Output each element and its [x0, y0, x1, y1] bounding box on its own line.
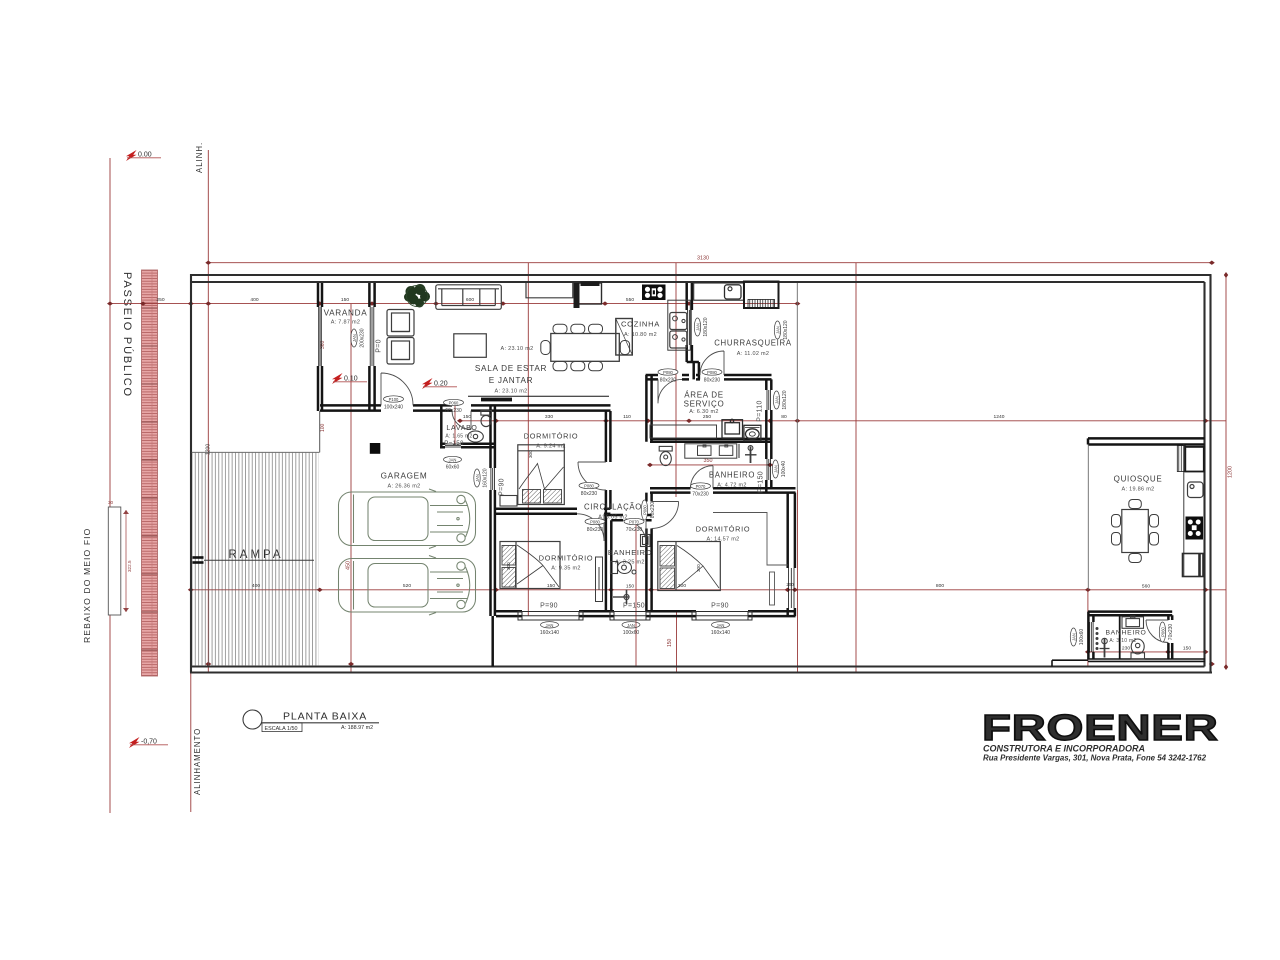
svg-text:80x230: 80x230 — [581, 491, 598, 497]
svg-text:Rua Presidente Vargas, 301, No: Rua Presidente Vargas, 301, Nova Prata, … — [983, 754, 1207, 763]
svg-text:JAN: JAN — [546, 623, 554, 628]
svg-text:A: 23.10 m2: A: 23.10 m2 — [501, 346, 534, 352]
svg-text:JAN: JAN — [627, 623, 635, 628]
svg-text:A: 4.72 m2: A: 4.72 m2 — [717, 483, 747, 489]
svg-text:A: 7.87 m2: A: 7.87 m2 — [331, 320, 361, 326]
svg-text:160x140: 160x140 — [540, 630, 559, 636]
svg-text:PASSEIO PÚBLICO: PASSEIO PÚBLICO — [121, 272, 134, 398]
svg-text:A: 6.30 m2: A: 6.30 m2 — [689, 409, 719, 415]
svg-text:100x60: 100x60 — [623, 630, 640, 636]
svg-text:P=90: P=90 — [499, 478, 506, 496]
svg-text:CONSTRUTORA E INCORPORADORA: CONSTRUTORA E INCORPORADORA — [983, 744, 1145, 754]
svg-text:REBAIXO DO MEIO FIO: REBAIXO DO MEIO FIO — [82, 528, 92, 643]
svg-text:250: 250 — [156, 297, 164, 303]
svg-text:180x120: 180x120 — [783, 320, 789, 339]
svg-text:322.5: 322.5 — [127, 560, 132, 572]
svg-text:150: 150 — [667, 638, 673, 647]
svg-text:70x230: 70x230 — [692, 492, 709, 498]
svg-text:A: 10.80 m2: A: 10.80 m2 — [624, 332, 657, 338]
svg-text:160x120: 160x120 — [483, 468, 489, 487]
svg-text:70x230: 70x230 — [1168, 624, 1174, 641]
svg-text:JAN: JAN — [696, 323, 701, 331]
svg-text:P=90: P=90 — [711, 603, 729, 610]
svg-text:P=90: P=90 — [540, 603, 558, 610]
svg-text:BANHEIRO: BANHEIRO — [709, 471, 755, 480]
svg-text:DORMITÓRIO: DORMITÓRIO — [524, 432, 578, 441]
svg-text:230: 230 — [1122, 645, 1130, 651]
svg-text:100x60: 100x60 — [1079, 629, 1085, 646]
svg-text:DORMITÓRIO: DORMITÓRIO — [696, 525, 750, 534]
svg-text:P070: P070 — [696, 484, 706, 489]
svg-text:A: 11.02 m2: A: 11.02 m2 — [737, 351, 770, 357]
svg-text:P060: P060 — [449, 401, 459, 406]
svg-text:560: 560 — [1142, 583, 1150, 589]
svg-text:330: 330 — [545, 414, 553, 420]
svg-text:CHURRASQUEIRA: CHURRASQUEIRA — [714, 339, 792, 348]
svg-text:E JANTAR: E JANTAR — [489, 376, 534, 385]
svg-text:200x230: 200x230 — [360, 328, 366, 347]
svg-text:CIRCULAÇÃO: CIRCULAÇÃO — [584, 503, 642, 512]
svg-text:SERVIÇO: SERVIÇO — [684, 400, 725, 409]
svg-text:A: 19.86 m2: A: 19.86 m2 — [1122, 487, 1155, 493]
svg-text:P080: P080 — [643, 504, 648, 514]
svg-text:A: 188.97 m2: A: 188.97 m2 — [341, 725, 373, 731]
svg-text:110: 110 — [623, 414, 631, 420]
svg-text:60x60: 60x60 — [446, 465, 460, 471]
svg-text:P060: P060 — [1161, 626, 1166, 636]
svg-text:A: 23.10 m2: A: 23.10 m2 — [495, 389, 528, 395]
svg-text:100: 100 — [320, 423, 326, 432]
svg-text:150: 150 — [1183, 645, 1191, 651]
svg-text:P=110: P=110 — [757, 400, 764, 421]
svg-text:1200: 1200 — [1228, 466, 1234, 478]
svg-text:BANHEIRO: BANHEIRO — [608, 548, 652, 557]
svg-text:550: 550 — [626, 297, 634, 303]
svg-text:P100: P100 — [389, 397, 399, 402]
svg-text:450: 450 — [346, 561, 352, 570]
svg-text:160x140: 160x140 — [711, 630, 730, 636]
svg-text:JAN: JAN — [775, 396, 780, 404]
svg-text:DORMITÓRIO: DORMITÓRIO — [539, 554, 593, 563]
svg-text:JAN: JAN — [449, 458, 457, 463]
svg-text:PLANTA BAIXA: PLANTA BAIXA — [283, 711, 367, 723]
svg-text:350: 350 — [704, 458, 713, 464]
svg-text:80x230: 80x230 — [704, 378, 721, 384]
svg-text:180x120: 180x120 — [703, 317, 709, 336]
svg-text:ESCALA 1/50: ESCALA 1/50 — [265, 726, 298, 732]
svg-text:100x40: 100x40 — [781, 461, 787, 478]
svg-text:VARANDA: VARANDA — [324, 309, 368, 318]
svg-text:400: 400 — [250, 297, 258, 303]
svg-text:BANHEIRO: BANHEIRO — [1105, 630, 1146, 637]
svg-text:JAN: JAN — [774, 465, 779, 473]
svg-text:A: 26.36 m2: A: 26.36 m2 — [388, 484, 421, 490]
svg-text:JAN: JAN — [717, 623, 725, 628]
svg-text:80x230: 80x230 — [650, 502, 656, 519]
svg-text:100x240: 100x240 — [384, 405, 403, 411]
svg-text:600: 600 — [466, 297, 474, 303]
svg-text:P070: P070 — [629, 520, 639, 525]
svg-text:QUIOSQUE: QUIOSQUE — [1114, 475, 1163, 484]
svg-text:GARAGEM: GARAGEM — [381, 472, 428, 481]
svg-text:A: 3.10 m2: A: 3.10 m2 — [1109, 638, 1136, 644]
svg-text:80: 80 — [781, 414, 787, 420]
svg-text:JAN: JAN — [1072, 633, 1077, 641]
svg-text:SALA DE ESTAR: SALA DE ESTAR — [475, 364, 547, 373]
svg-text:ALINH.: ALINH. — [195, 142, 204, 173]
svg-text:60x230: 60x230 — [445, 408, 462, 414]
svg-text:P080: P080 — [707, 370, 717, 375]
svg-text:COZINHA: COZINHA — [621, 320, 660, 329]
svg-text:JAN: JAN — [352, 334, 357, 342]
svg-text:300: 300 — [528, 450, 533, 458]
svg-text:80x230: 80x230 — [587, 527, 604, 533]
svg-text:P=0: P=0 — [376, 339, 383, 353]
svg-text:200: 200 — [786, 582, 794, 587]
svg-text:P=150: P=150 — [444, 440, 464, 447]
svg-text:FROENER: FROENER — [982, 707, 1219, 748]
svg-text:150: 150 — [463, 414, 471, 420]
svg-text:70x230: 70x230 — [626, 527, 643, 533]
svg-text:800: 800 — [936, 583, 944, 589]
svg-text:JAN: JAN — [776, 326, 781, 334]
svg-text:300: 300 — [696, 564, 701, 572]
svg-text:300: 300 — [506, 562, 511, 570]
svg-text:80x230: 80x230 — [660, 378, 677, 384]
svg-text:ALINHAMENTO: ALINHAMENTO — [193, 728, 202, 795]
svg-text:30: 30 — [108, 500, 114, 505]
svg-text:520: 520 — [403, 583, 411, 589]
svg-text:P080: P080 — [663, 370, 673, 375]
svg-text:250: 250 — [703, 414, 711, 420]
svg-text:180x120: 180x120 — [782, 390, 788, 409]
svg-text:1240: 1240 — [994, 414, 1005, 420]
svg-text:P080: P080 — [590, 520, 600, 525]
svg-text:150: 150 — [341, 297, 349, 303]
svg-text:ÁREA DE: ÁREA DE — [684, 391, 724, 400]
svg-text:P080: P080 — [584, 484, 594, 489]
svg-text:A: 9.35 m2: A: 9.35 m2 — [551, 566, 581, 572]
svg-text:JAN: JAN — [475, 474, 480, 482]
svg-text:3130: 3130 — [697, 256, 709, 262]
svg-text:P=150: P=150 — [758, 471, 765, 493]
svg-text:150: 150 — [626, 583, 634, 589]
